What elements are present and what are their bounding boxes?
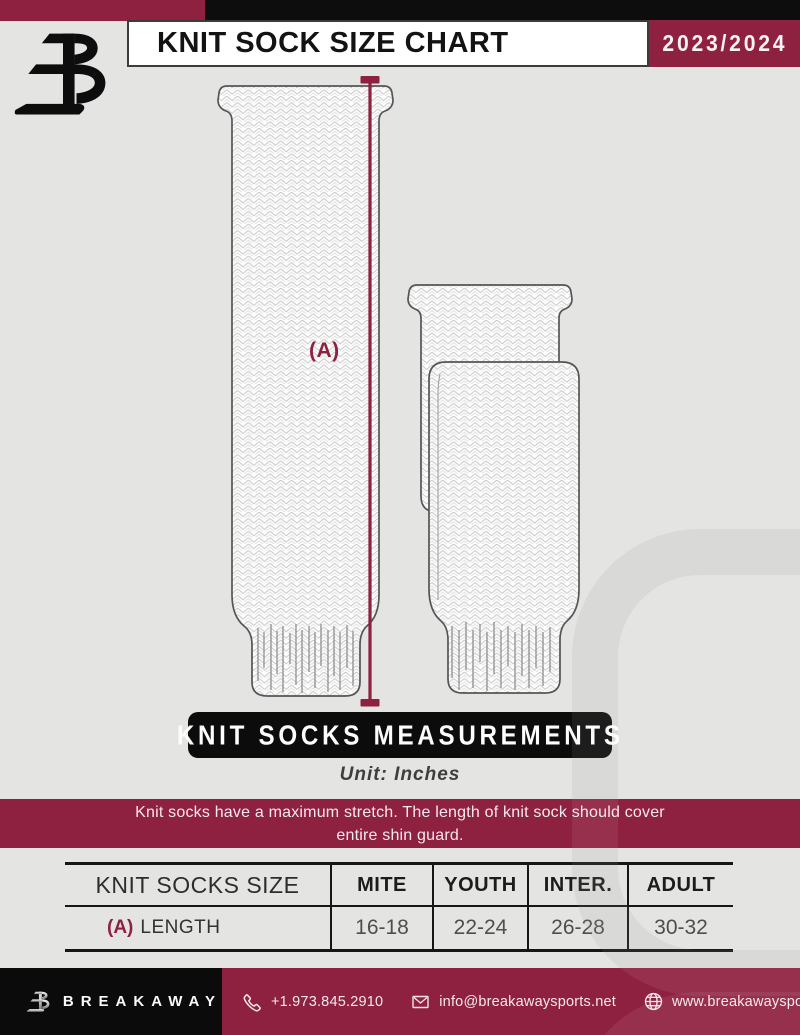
footer-phone: +1.973.845.2910 (243, 992, 383, 1012)
table-header-adult: ADULT (627, 865, 733, 907)
table-header-youth: YOUTH (432, 865, 527, 907)
table-header-mite: MITE (330, 865, 432, 907)
breakaway-b-logo (10, 22, 116, 128)
email-address: info@breakawaysports.net (439, 994, 616, 1010)
sock-large (218, 86, 393, 696)
unit-label: Unit: Inches (0, 764, 800, 786)
footer-brand-block: BREAKAWAY (0, 968, 222, 1035)
brand-name: BREAKAWAY (63, 993, 222, 1010)
footer-website: www.breakawaysports.net (643, 991, 800, 1012)
notice-line-2: entire shin guard. (336, 824, 463, 847)
phone-icon (243, 992, 263, 1012)
top-accent-strip (0, 0, 800, 21)
top-strip-black (205, 0, 800, 21)
envelope-icon (410, 992, 431, 1012)
row-key-a: (A) (107, 917, 133, 939)
size-table: KNIT SOCKS SIZE MITE YOUTH INTER. ADULT … (65, 862, 733, 952)
season-badge: 2023/2024 (649, 20, 800, 67)
stretch-notice-banner: Knit socks have a maximum stretch. The l… (0, 799, 800, 848)
row-label-length: LENGTH (140, 917, 220, 939)
top-strip-maroon (0, 0, 205, 21)
length-value-adult: 30-32 (627, 907, 733, 949)
title-bar: KNIT SOCK SIZE CHART (127, 20, 649, 67)
page-title: KNIT SOCK SIZE CHART (129, 27, 509, 60)
notice-line-1: Knit socks have a maximum stretch. The l… (135, 801, 665, 824)
footer-email: info@breakawaysports.net (410, 992, 616, 1012)
length-value-youth: 22-24 (432, 907, 527, 949)
measurements-banner-text: KNIT SOCKS MEASUREMENTS (177, 718, 624, 751)
globe-icon (643, 991, 664, 1012)
measurement-label-a: (A) (309, 339, 340, 363)
season-label: 2023/2024 (662, 30, 787, 57)
table-row-length-label: (A) LENGTH (65, 907, 330, 949)
phone-number: +1.973.845.2910 (271, 994, 383, 1010)
length-value-mite: 16-18 (330, 907, 432, 949)
knit-sock-diagram (0, 0, 800, 760)
breakaway-b-logo-small (27, 983, 51, 1021)
knit-sock-size-chart-page: KNIT SOCK SIZE CHART 2023/2024 (A) KNIT … (0, 0, 800, 1035)
footer-contact-bar: +1.973.845.2910 info@breakawaysports.net… (222, 968, 800, 1035)
measurements-banner: KNIT SOCKS MEASUREMENTS (188, 712, 612, 758)
table-header-inter: INTER. (527, 865, 627, 907)
length-value-inter: 26-28 (527, 907, 627, 949)
table-header-size: KNIT SOCKS SIZE (65, 865, 330, 907)
website-url: www.breakawaysports.net (672, 994, 800, 1010)
sock-front (429, 362, 579, 693)
footer: BREAKAWAY +1.973.845.2910 info@breakaway… (0, 968, 800, 1035)
